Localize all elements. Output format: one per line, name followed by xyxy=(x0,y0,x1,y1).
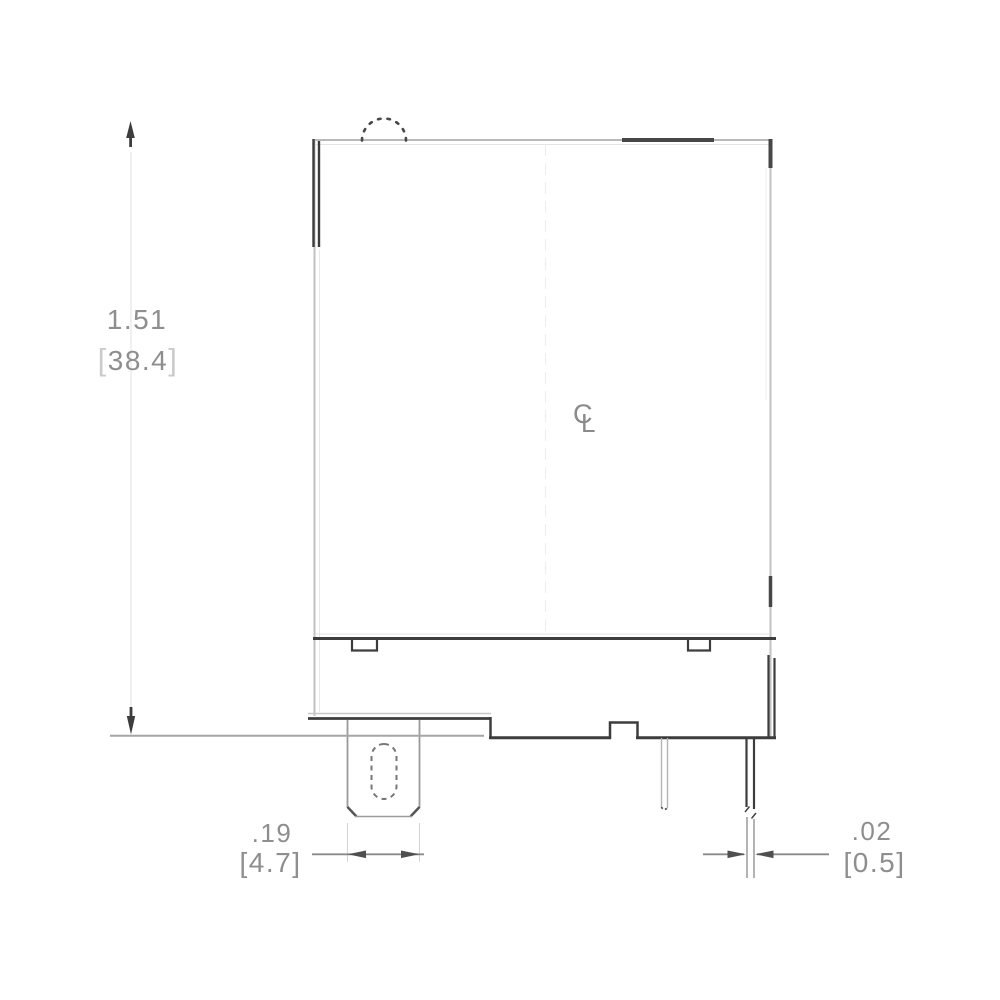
quick-connect-tab xyxy=(348,720,420,817)
pin-thickness-dimension xyxy=(703,851,829,859)
relay-body-outline xyxy=(314,139,775,738)
tab-width-dimension xyxy=(312,823,424,862)
bottom-step-notch xyxy=(610,723,638,740)
top-dome-hidden-arc xyxy=(362,119,406,141)
mm-open-bracket: [ xyxy=(98,342,108,377)
center-pin-tip xyxy=(662,807,668,809)
pin-thickness-inches-label: .02 xyxy=(822,818,922,844)
height-dimension-mm-value: 38.4 xyxy=(108,345,169,376)
tab-detent-hole xyxy=(372,744,397,799)
tab-width-mm-label: [4.7] xyxy=(218,849,323,877)
height-dimension-mm-label: [38.4] xyxy=(77,344,199,375)
base-flange xyxy=(308,634,776,739)
centerline-symbol-l: L xyxy=(581,410,595,436)
tab-width-inches-label: .19 xyxy=(222,820,322,846)
pin-thickness-mm-label: [0.5] xyxy=(822,849,927,877)
mm-close-bracket: ] xyxy=(168,342,178,377)
height-dimension-inches-label: 1.51 xyxy=(87,306,187,334)
center-pin xyxy=(662,738,668,809)
flange-notch-left xyxy=(352,639,377,651)
height-dimension xyxy=(126,121,135,735)
flange-notch-right xyxy=(688,639,710,651)
right-terminal-pin xyxy=(745,738,756,878)
technical-drawing-page: 1.51 [38.4] .19 [4.7] .02 [0.5] C L xyxy=(0,0,1000,1000)
